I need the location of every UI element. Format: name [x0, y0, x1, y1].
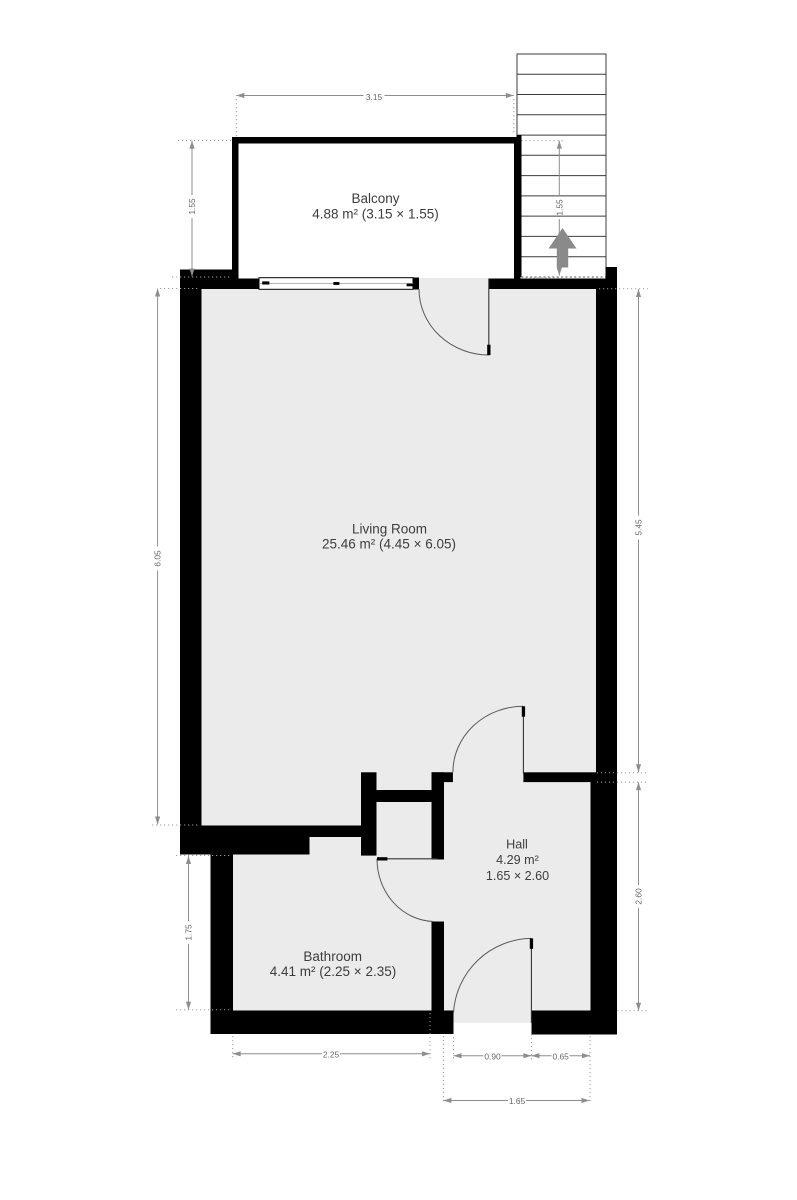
svg-text:3.15: 3.15 [366, 92, 383, 102]
svg-text:4.88 m² (3.15 × 1.55): 4.88 m² (3.15 × 1.55) [312, 206, 438, 221]
svg-text:Bathroom: Bathroom [303, 949, 362, 964]
svg-text:0.90: 0.90 [484, 1051, 501, 1061]
svg-text:1.65: 1.65 [509, 1096, 526, 1106]
svg-text:1.75: 1.75 [184, 924, 194, 941]
svg-text:0.65: 0.65 [553, 1051, 570, 1061]
svg-text:2.60: 2.60 [634, 888, 644, 905]
svg-text:4.29 m²: 4.29 m² [496, 853, 539, 867]
svg-text:1.55: 1.55 [187, 198, 197, 215]
svg-text:1.55: 1.55 [554, 199, 564, 216]
svg-text:6.05: 6.05 [153, 550, 163, 567]
svg-text:2.25: 2.25 [323, 1049, 340, 1059]
svg-text:25.46 m² (4.45 × 6.05): 25.46 m² (4.45 × 6.05) [322, 537, 456, 552]
svg-text:4.41 m² (2.25 × 2.35): 4.41 m² (2.25 × 2.35) [270, 964, 396, 979]
svg-text:Hall: Hall [506, 838, 528, 852]
svg-text:5.45: 5.45 [634, 519, 644, 536]
svg-text:1.65 × 2.60: 1.65 × 2.60 [486, 869, 549, 883]
svg-text:Living Room: Living Room [352, 521, 427, 536]
svg-text:Balcony: Balcony [351, 191, 399, 206]
